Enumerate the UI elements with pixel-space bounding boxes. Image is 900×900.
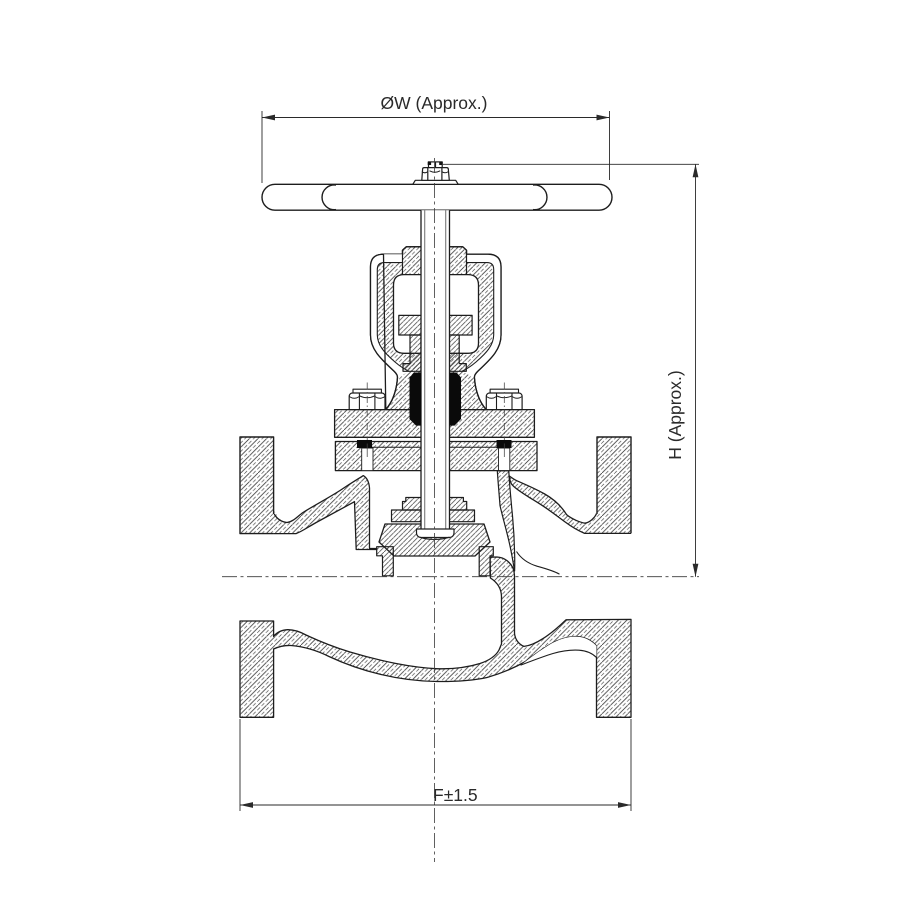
svg-text:H (Approx.): H (Approx.) — [665, 370, 685, 459]
svg-text:ØW (Approx.): ØW (Approx.) — [381, 93, 488, 113]
svg-text:F±1.5: F±1.5 — [433, 785, 478, 805]
